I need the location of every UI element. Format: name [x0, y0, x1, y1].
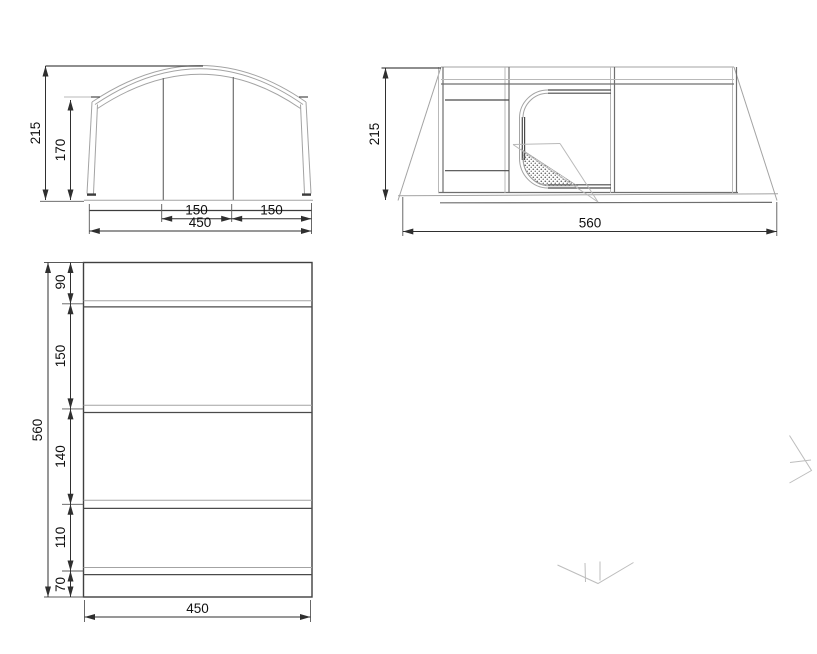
stray-chevron-bar — [790, 460, 811, 463]
flap-diag-1 — [513, 145, 598, 203]
dim-label-front-width: 450 — [189, 215, 212, 230]
dim-label-side-length: 560 — [579, 216, 602, 231]
arch-inner-line — [98, 74, 301, 108]
right-wall-inner-line — [301, 105, 305, 194]
dim-label-front-height-total: 215 — [28, 122, 43, 145]
front-view: 215 170 150 150 450 — [28, 66, 313, 235]
flap-top-line — [513, 144, 560, 145]
floor-plan: 560 90 150 140 110 70 450 — [30, 263, 312, 623]
stray-chevron-mark — [790, 436, 812, 484]
left-wall-outer-line — [87, 102, 92, 194]
right-wall-outer-line — [306, 102, 311, 194]
right-slant-line — [734, 67, 777, 201]
dim-label-plan-length: 560 — [30, 419, 45, 442]
stray-tick-1 — [585, 563, 586, 582]
dim-label-plan-width: 450 — [186, 601, 209, 616]
door-arc-top-inner — [523, 93, 548, 118]
left-slant-line — [398, 67, 441, 201]
tent-dimension-drawing: 215 170 150 150 450 — [0, 0, 817, 654]
dim-label-section-110: 110 — [53, 527, 68, 549]
floor-plan-outline — [84, 263, 313, 598]
technical-drawing-canvas: 215 170 150 150 450 — [0, 0, 817, 654]
flap-diag-2 — [560, 144, 598, 203]
dim-label-front-height-wall: 170 — [53, 139, 68, 162]
dim-label-section-140: 140 — [53, 445, 68, 468]
arch-outer-line — [92, 66, 306, 103]
dim-label-section-70: 70 — [53, 577, 68, 592]
dim-label-section-150: 150 — [53, 345, 68, 368]
dim-label-section-90: 90 — [53, 274, 68, 289]
left-wall-inner-line — [94, 105, 98, 194]
dim-label-door-right: 150 — [260, 203, 283, 218]
side-view: 215 560 — [367, 67, 778, 236]
stray-marks — [558, 436, 812, 584]
stray-v-mark — [558, 563, 634, 584]
dim-label-side-height: 215 — [367, 123, 382, 146]
